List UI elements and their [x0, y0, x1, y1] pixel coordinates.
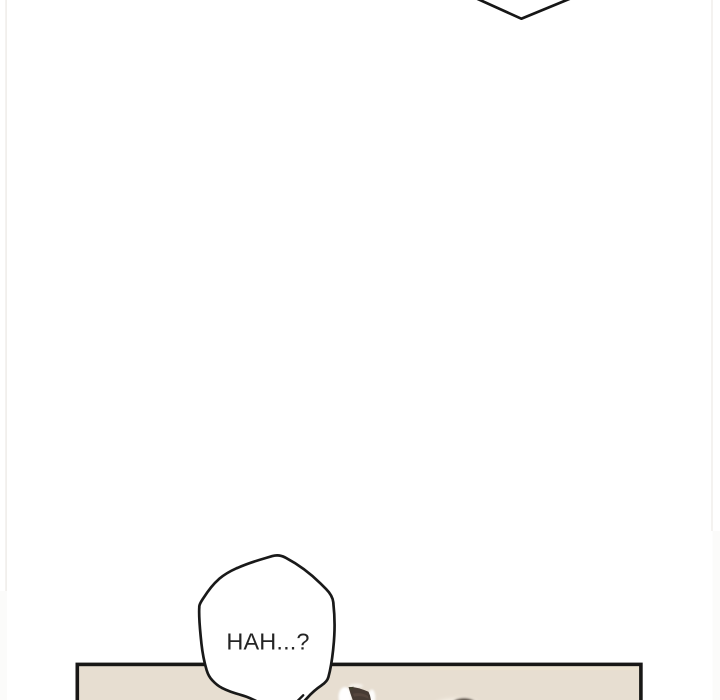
svg-text:HAH...?: HAH...? [226, 629, 309, 655]
